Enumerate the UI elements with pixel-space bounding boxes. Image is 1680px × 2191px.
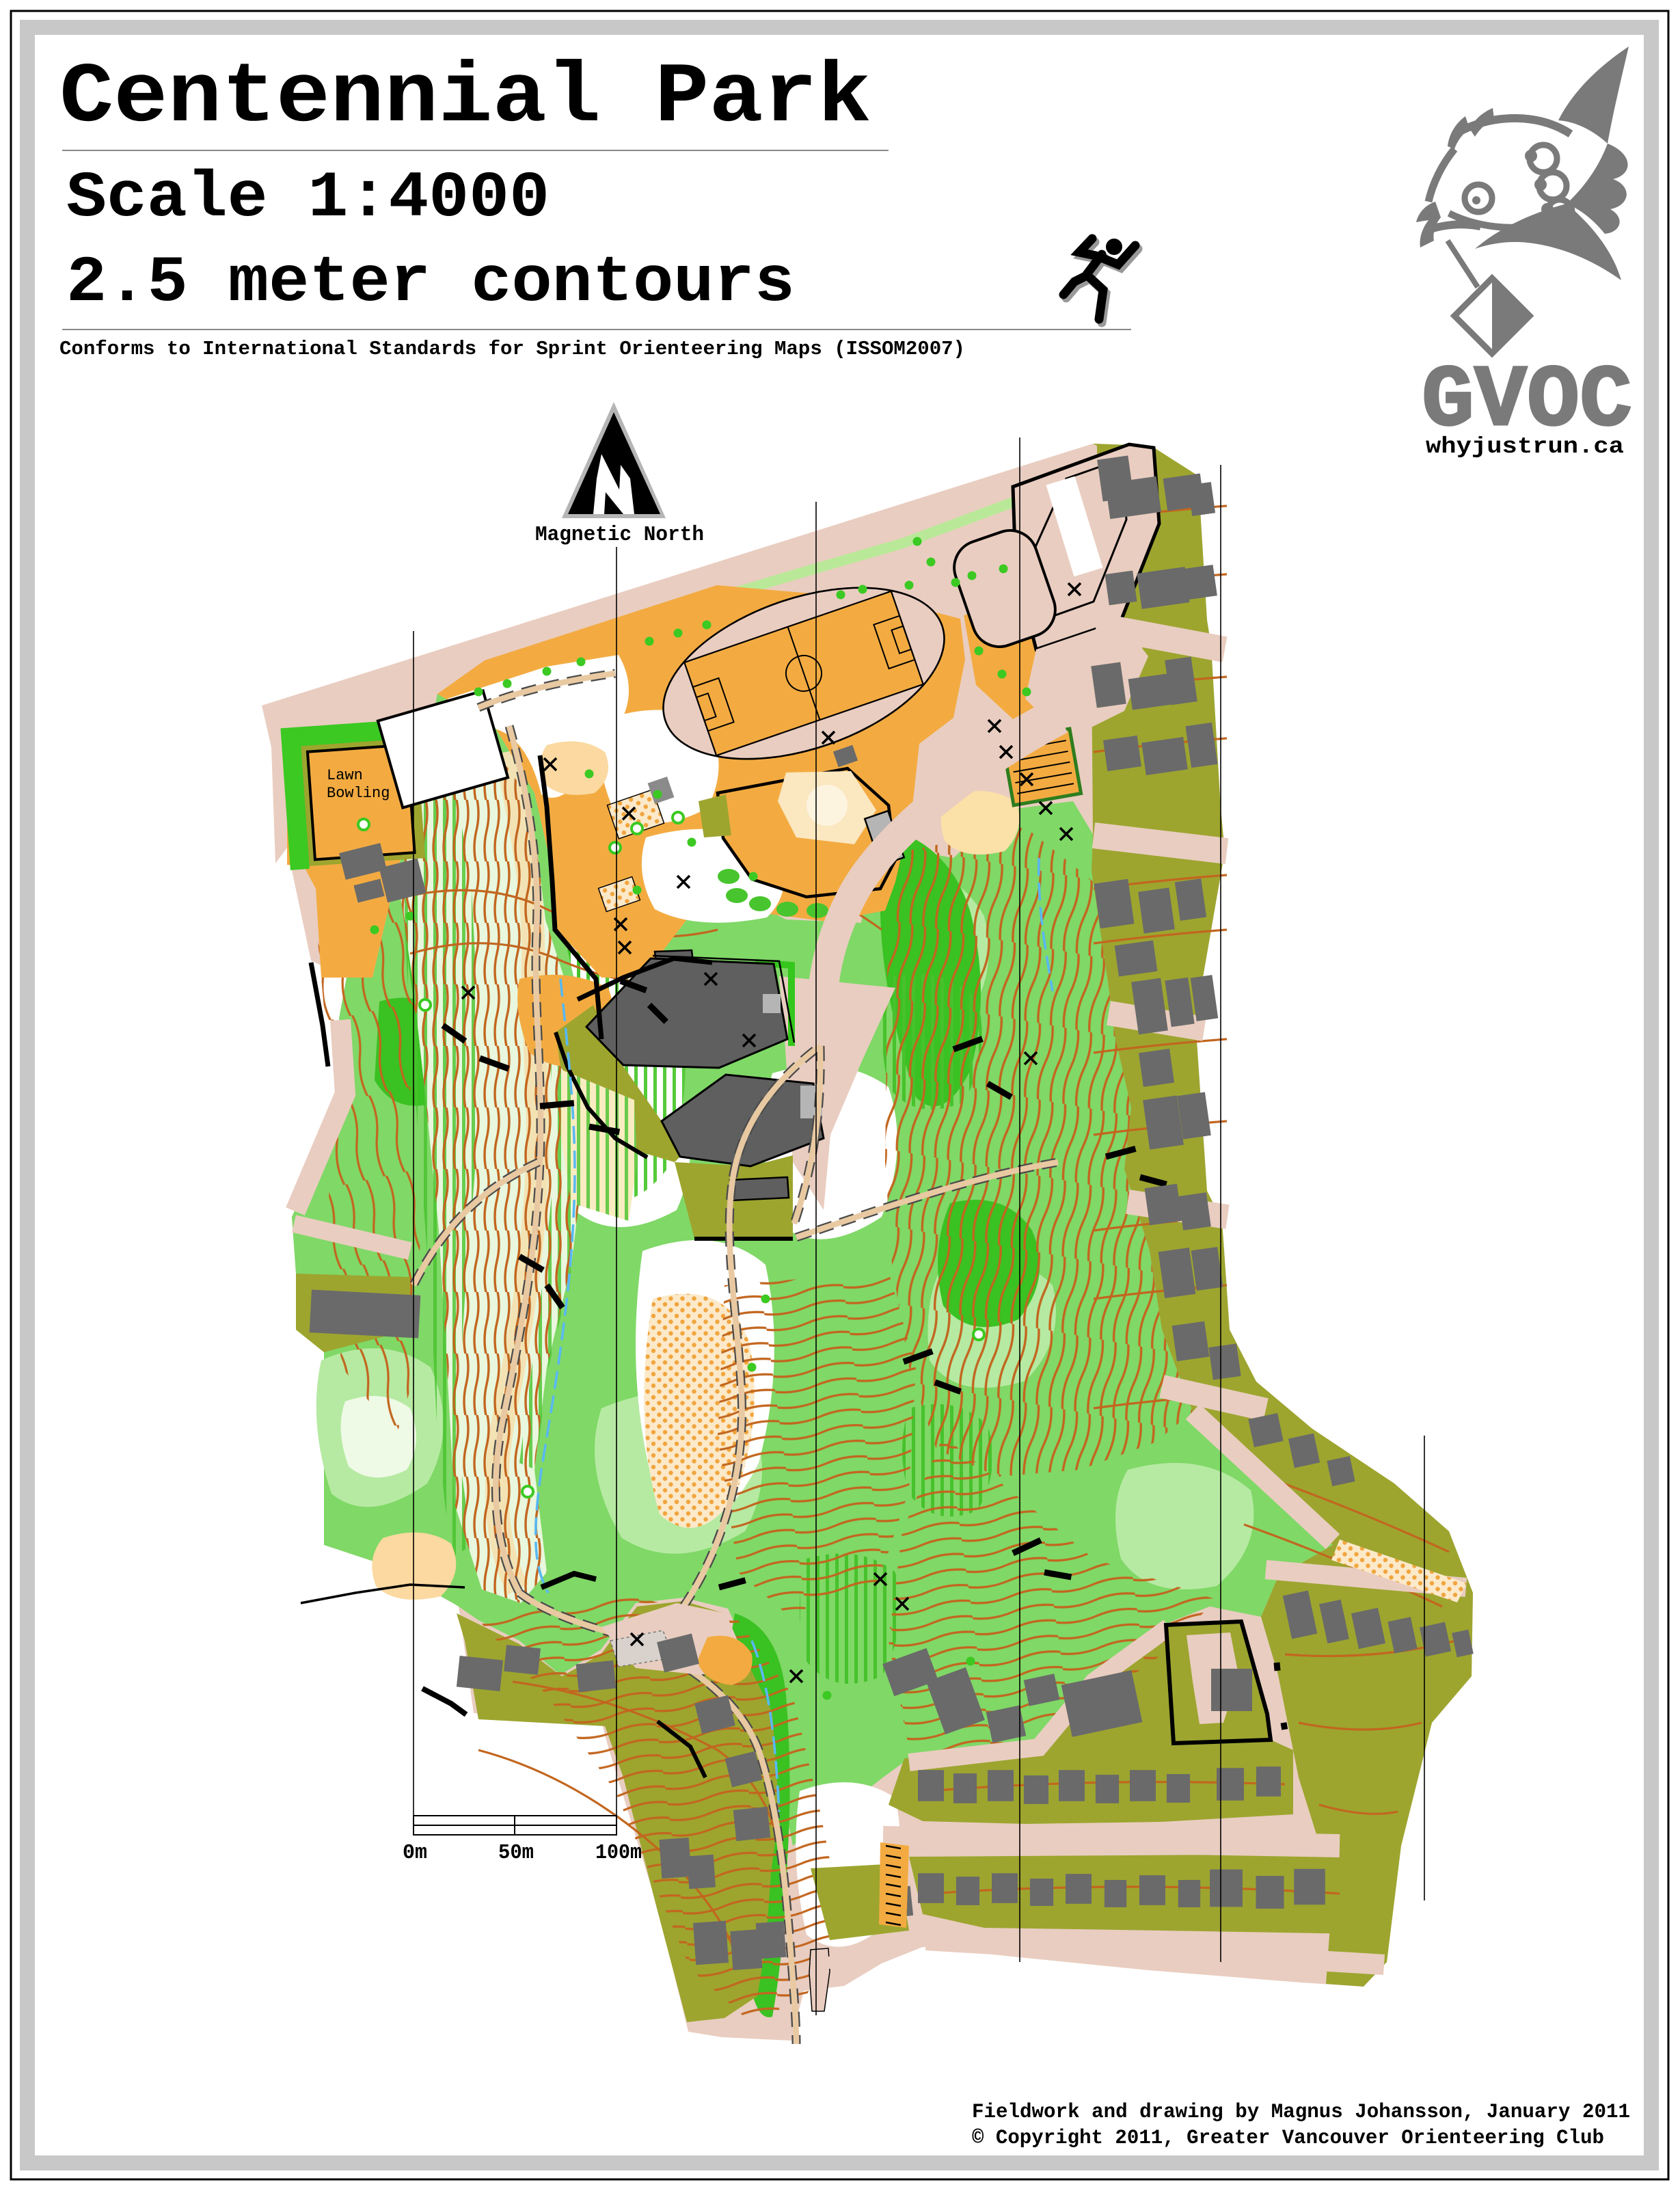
svg-text:Magnetic North: Magnetic North: [535, 523, 704, 547]
svg-text:0m: 0m: [403, 1841, 427, 1865]
svg-text:Bowling: Bowling: [327, 785, 390, 802]
svg-text:Fieldwork and drawing by Magnu: Fieldwork and drawing by Magnus Johansso…: [972, 2100, 1630, 2123]
svg-text:whyjustrun.ca: whyjustrun.ca: [1426, 434, 1624, 459]
svg-text:100m: 100m: [595, 1841, 642, 1865]
svg-text:Lawn: Lawn: [327, 767, 363, 784]
svg-text:© Copyright 2011, Greater Vanc: © Copyright 2011, Greater Vancouver Orie…: [972, 2126, 1604, 2149]
svg-text:Conforms to International Stan: Conforms to International Standards for …: [59, 338, 965, 360]
svg-text:Centennial Park: Centennial Park: [59, 51, 871, 146]
svg-text:Scale 1:4000: Scale 1:4000: [66, 161, 550, 235]
svg-text:2.5 meter contours: 2.5 meter contours: [66, 246, 795, 320]
svg-text:50m: 50m: [498, 1841, 534, 1865]
